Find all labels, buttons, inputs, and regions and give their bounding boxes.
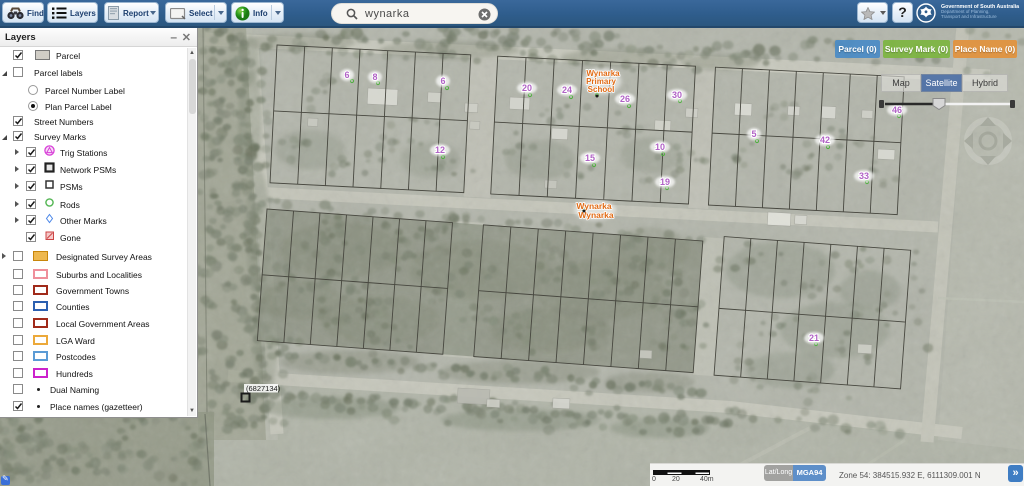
- svg-text:24: 24: [562, 85, 572, 95]
- svg-text:6: 6: [440, 76, 445, 86]
- svg-text:6: 6: [344, 70, 349, 80]
- svg-text:School: School: [588, 85, 615, 94]
- svg-text:12: 12: [435, 145, 445, 155]
- svg-text:10: 10: [655, 142, 665, 152]
- svg-text:21: 21: [809, 333, 819, 343]
- svg-text:33: 33: [859, 171, 869, 181]
- svg-text:(6827134): (6827134): [246, 384, 281, 393]
- svg-text:8: 8: [372, 72, 377, 82]
- svg-text:30: 30: [672, 90, 682, 100]
- svg-text:26: 26: [620, 94, 630, 104]
- svg-text:19: 19: [660, 177, 670, 187]
- svg-text:20: 20: [522, 83, 532, 93]
- svg-text:5: 5: [751, 129, 756, 139]
- svg-text:15: 15: [585, 153, 595, 163]
- svg-text:42: 42: [820, 135, 830, 145]
